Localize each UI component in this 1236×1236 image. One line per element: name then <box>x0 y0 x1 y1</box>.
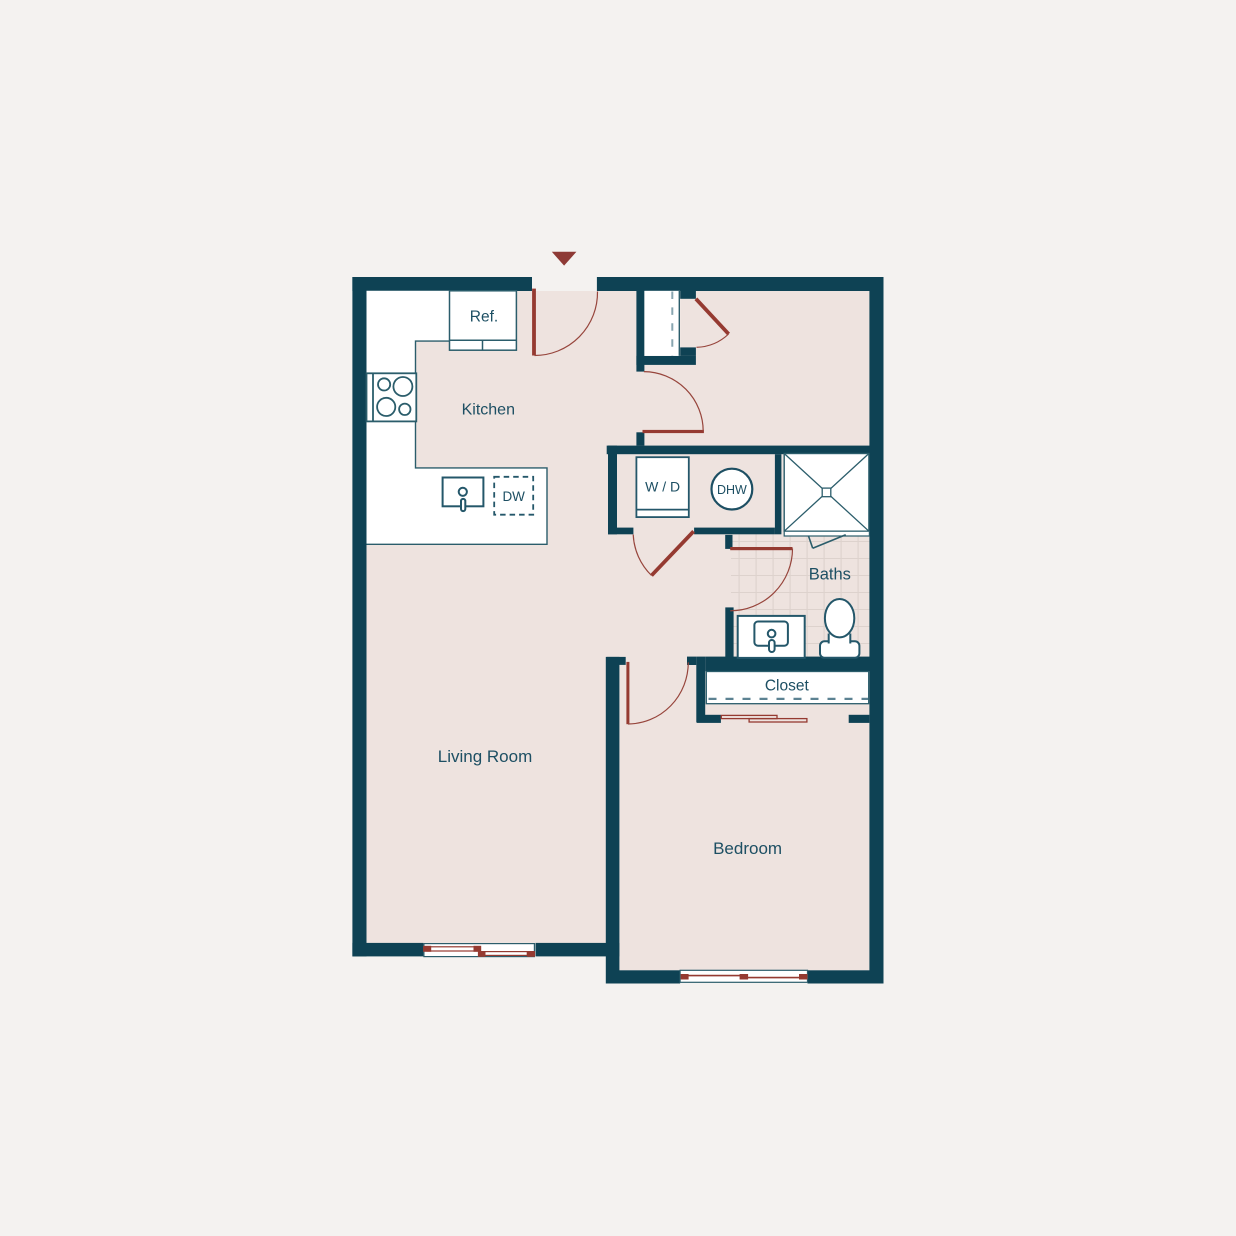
svg-text:Closet: Closet <box>765 678 810 695</box>
svg-text:DW: DW <box>502 489 525 504</box>
svg-text:Kitchen: Kitchen <box>462 402 515 419</box>
svg-text:Living Room: Living Room <box>438 747 533 766</box>
svg-text:Baths: Baths <box>809 566 851 584</box>
svg-text:W / D: W / D <box>645 479 680 495</box>
svg-text:DHW: DHW <box>717 483 747 497</box>
svg-text:Bedroom: Bedroom <box>713 839 782 858</box>
svg-text:Ref.: Ref. <box>470 309 498 326</box>
